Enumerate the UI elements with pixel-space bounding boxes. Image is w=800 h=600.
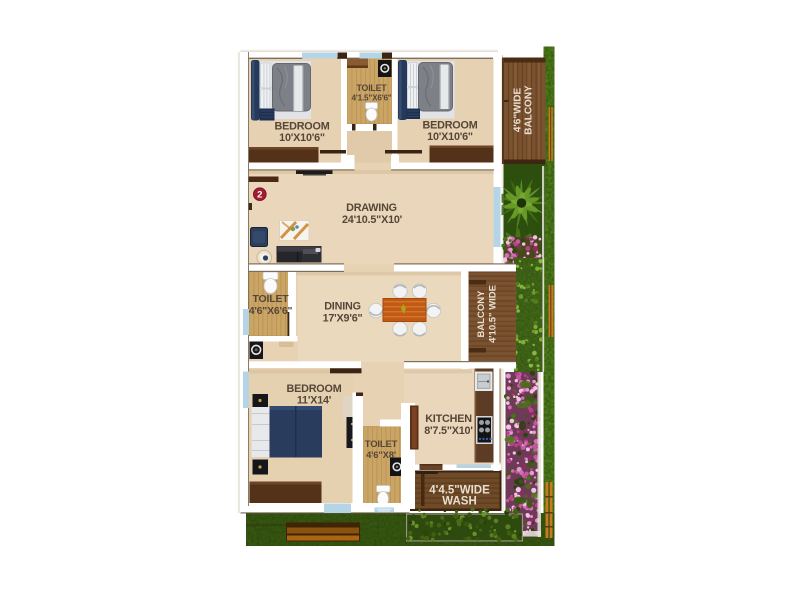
svg-text:4'6"X8': 4'6"X8' [366, 450, 396, 461]
svg-text:TOILET: TOILET [357, 83, 388, 93]
svg-text:11'X14': 11'X14' [297, 395, 332, 407]
svg-text:4'1.5"X6'6": 4'1.5"X6'6" [352, 94, 392, 103]
svg-text:TOILET: TOILET [365, 439, 398, 450]
svg-text:BALCONY: BALCONY [524, 85, 535, 135]
svg-text:4'6"X6'6": 4'6"X6'6" [249, 305, 293, 317]
svg-text:4'10.5" WIDE: 4'10.5" WIDE [488, 285, 499, 343]
svg-text:KITCHEN: KITCHEN [425, 413, 472, 425]
svg-text:TOILET: TOILET [253, 293, 290, 305]
svg-text:WASH: WASH [442, 496, 477, 508]
svg-text:8'7.5"X10': 8'7.5"X10' [424, 425, 473, 437]
svg-text:BEDROOM: BEDROOM [423, 120, 478, 132]
svg-text:BALCONY: BALCONY [476, 290, 487, 338]
svg-text:10'X10'6": 10'X10'6" [279, 132, 325, 144]
svg-text:17'X9'6": 17'X9'6" [323, 313, 363, 325]
svg-text:DRAWING: DRAWING [346, 202, 397, 214]
svg-text:24'10.5"X10': 24'10.5"X10' [342, 214, 403, 226]
svg-text:2: 2 [257, 190, 262, 201]
svg-text:DINING: DINING [324, 301, 361, 313]
svg-text:BEDROOM: BEDROOM [275, 121, 330, 133]
svg-text:BEDROOM: BEDROOM [287, 383, 342, 395]
svg-text:4'6"WIDE: 4'6"WIDE [513, 87, 524, 132]
svg-text:10'X10'6": 10'X10'6" [427, 131, 473, 143]
